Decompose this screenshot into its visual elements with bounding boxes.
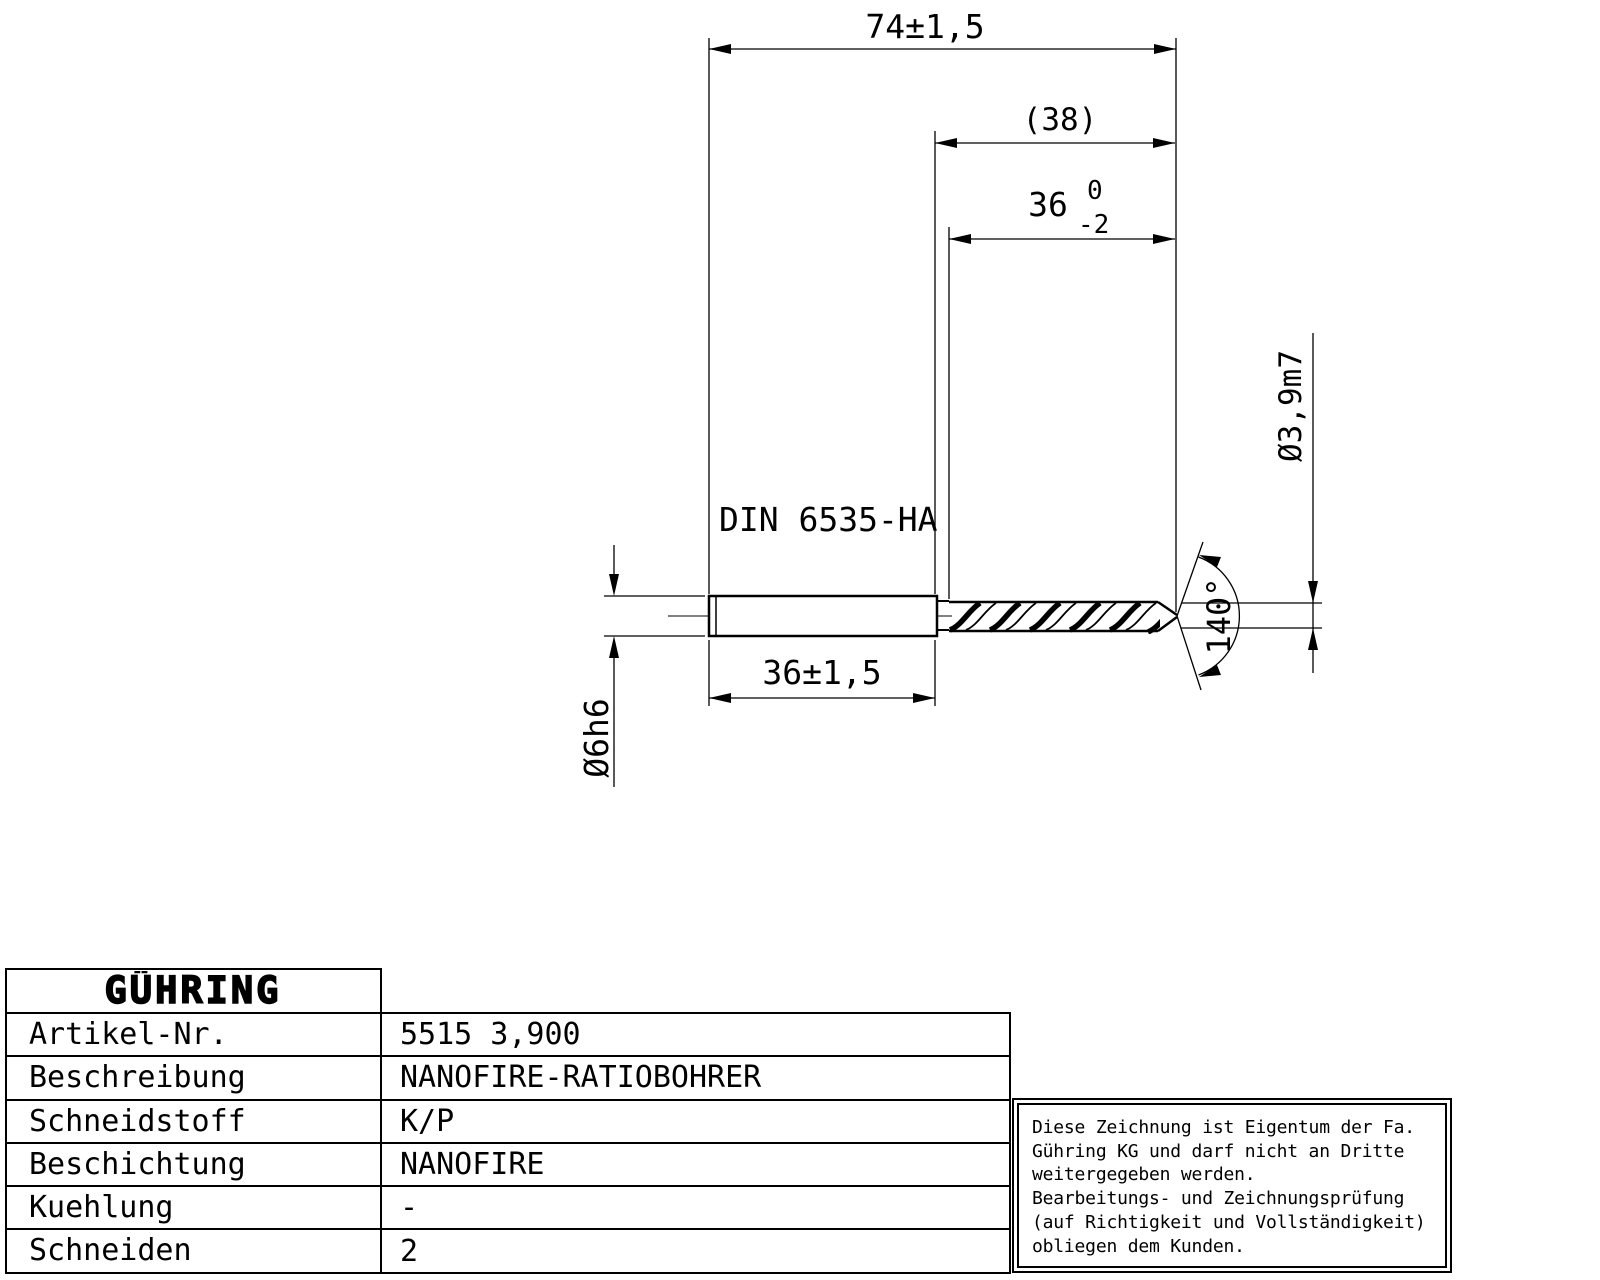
row-value: NANOFIRE-RATIOBOHRER (382, 1057, 761, 1098)
row-label: Beschichtung (7, 1144, 382, 1185)
disclaimer-note-box: Diese Zeichnung ist Eigentum der Fa. Güh… (1012, 1098, 1452, 1273)
note-line: Diese Zeichnung ist Eigentum der Fa. (1032, 1116, 1445, 1140)
guehring-logo-text: GÜHRING (105, 971, 282, 1011)
drill-technical-drawing: 74±1,5 (38) 36 0 -2 DIN 6535-HA 36±1,5 Ø… (0, 0, 1600, 950)
row-value: - (382, 1187, 418, 1228)
table-row: Schneidstoff K/P (7, 1101, 1009, 1144)
row-label: Kuehlung (7, 1187, 382, 1228)
row-value: 5515 3,900 (382, 1014, 581, 1055)
dim-flute-length-upper-tol: 0 (1087, 176, 1103, 206)
note-line: obliegen dem Kunden. (1032, 1235, 1445, 1259)
table-row: Kuehlung - (7, 1187, 1009, 1230)
row-label: Artikel-Nr. (7, 1014, 382, 1055)
dim-flute-length: 36 (1028, 185, 1068, 224)
flute-spiral (950, 603, 1178, 632)
note-line: Gühring KG und darf nicht an Dritte (1032, 1140, 1445, 1164)
table-row: Beschreibung NANOFIRE-RATIOBOHRER (7, 1057, 1009, 1100)
dim-total-length: 74±1,5 (865, 7, 984, 46)
dim-shank-length: 36±1,5 (762, 653, 881, 692)
disclaimer-note-inner: Diese Zeichnung ist Eigentum der Fa. Güh… (1017, 1103, 1447, 1268)
guehring-logo: GÜHRING (7, 971, 380, 1011)
note-line: Bearbeitungs- und Zeichnungsprüfung (1032, 1187, 1445, 1211)
table-row: Beschichtung NANOFIRE (7, 1144, 1009, 1187)
dim-drill-diameter: Ø3,9m7 (1273, 350, 1309, 462)
dim-point-angle: 140° (1200, 577, 1238, 654)
table-row: Artikel-Nr. 5515 3,900 (7, 1014, 1009, 1057)
note-line: weitergegeben werden. (1032, 1163, 1445, 1187)
drill-shank (709, 596, 937, 636)
drill-point (1158, 602, 1177, 631)
logo-cell: GÜHRING (5, 968, 382, 1012)
drawing-sheet: 74±1,5 (38) 36 0 -2 DIN 6535-HA 36±1,5 Ø… (0, 0, 1600, 1280)
dim-shank-diameter: Ø6h6 (577, 698, 616, 777)
row-value: NANOFIRE (382, 1144, 545, 1185)
row-label: Schneidstoff (7, 1101, 382, 1142)
dim-flute-length-ref: (38) (1023, 102, 1098, 138)
shank-standard-label: DIN 6535-HA (719, 500, 938, 539)
row-value: K/P (382, 1101, 454, 1142)
row-label: Beschreibung (7, 1057, 382, 1098)
title-block-table: Artikel-Nr. 5515 3,900 Beschreibung NANO… (5, 1012, 1011, 1274)
row-label: Schneiden (7, 1230, 382, 1271)
row-value: 2 (382, 1231, 418, 1272)
dim-flute-length-lower-tol: -2 (1078, 210, 1109, 240)
table-row: Schneiden 2 (7, 1230, 1009, 1271)
note-line: (auf Richtigkeit und Vollständigkeit) (1032, 1211, 1445, 1235)
